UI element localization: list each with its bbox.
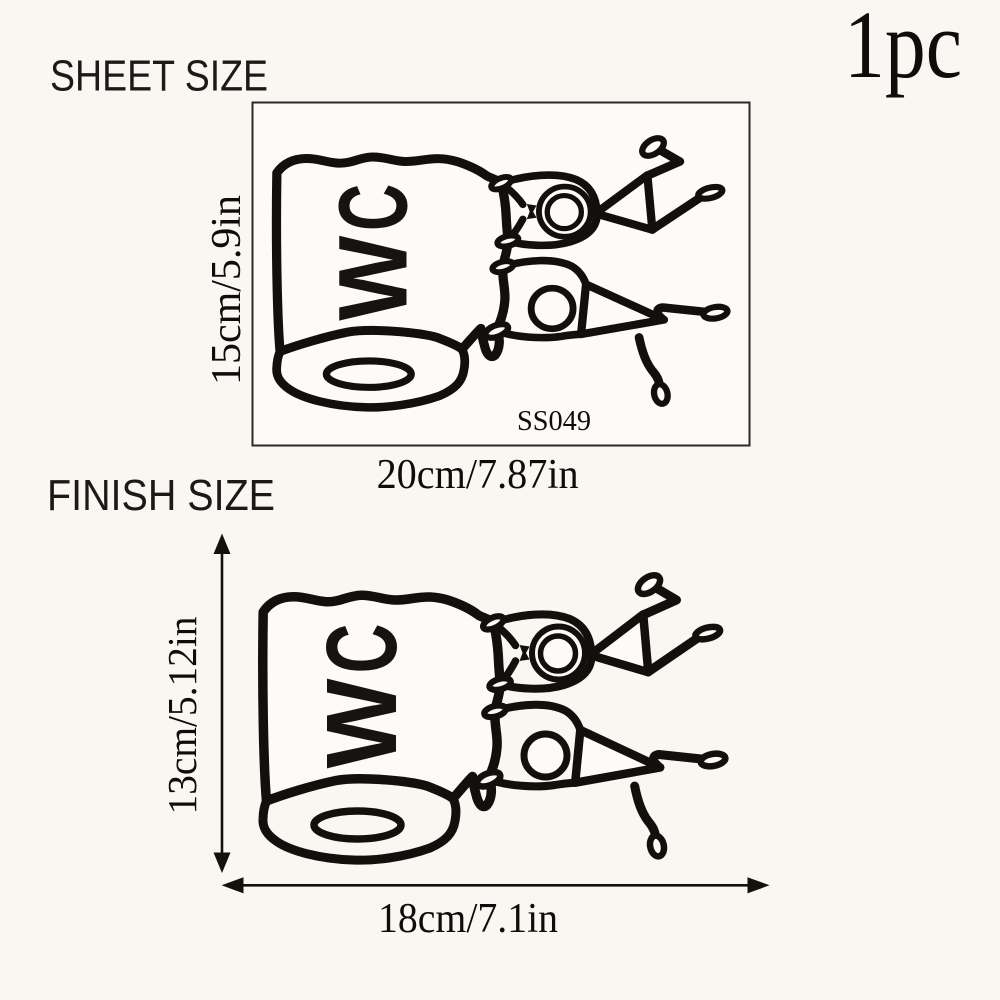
svg-text:13cm/5.12in: 13cm/5.12in <box>159 617 205 815</box>
svg-text:FINISH SIZE: FINISH SIZE <box>47 471 275 520</box>
svg-text:15cm/5.9in: 15cm/5.9in <box>204 195 250 385</box>
svg-text:18cm/7.1in: 18cm/7.1in <box>378 896 558 942</box>
svg-text:1pc: 1pc <box>844 0 962 98</box>
svg-text:20cm/7.87in: 20cm/7.87in <box>377 452 579 498</box>
svg-text:SHEET SIZE: SHEET SIZE <box>50 52 268 101</box>
svg-text:SS049: SS049 <box>517 405 591 437</box>
